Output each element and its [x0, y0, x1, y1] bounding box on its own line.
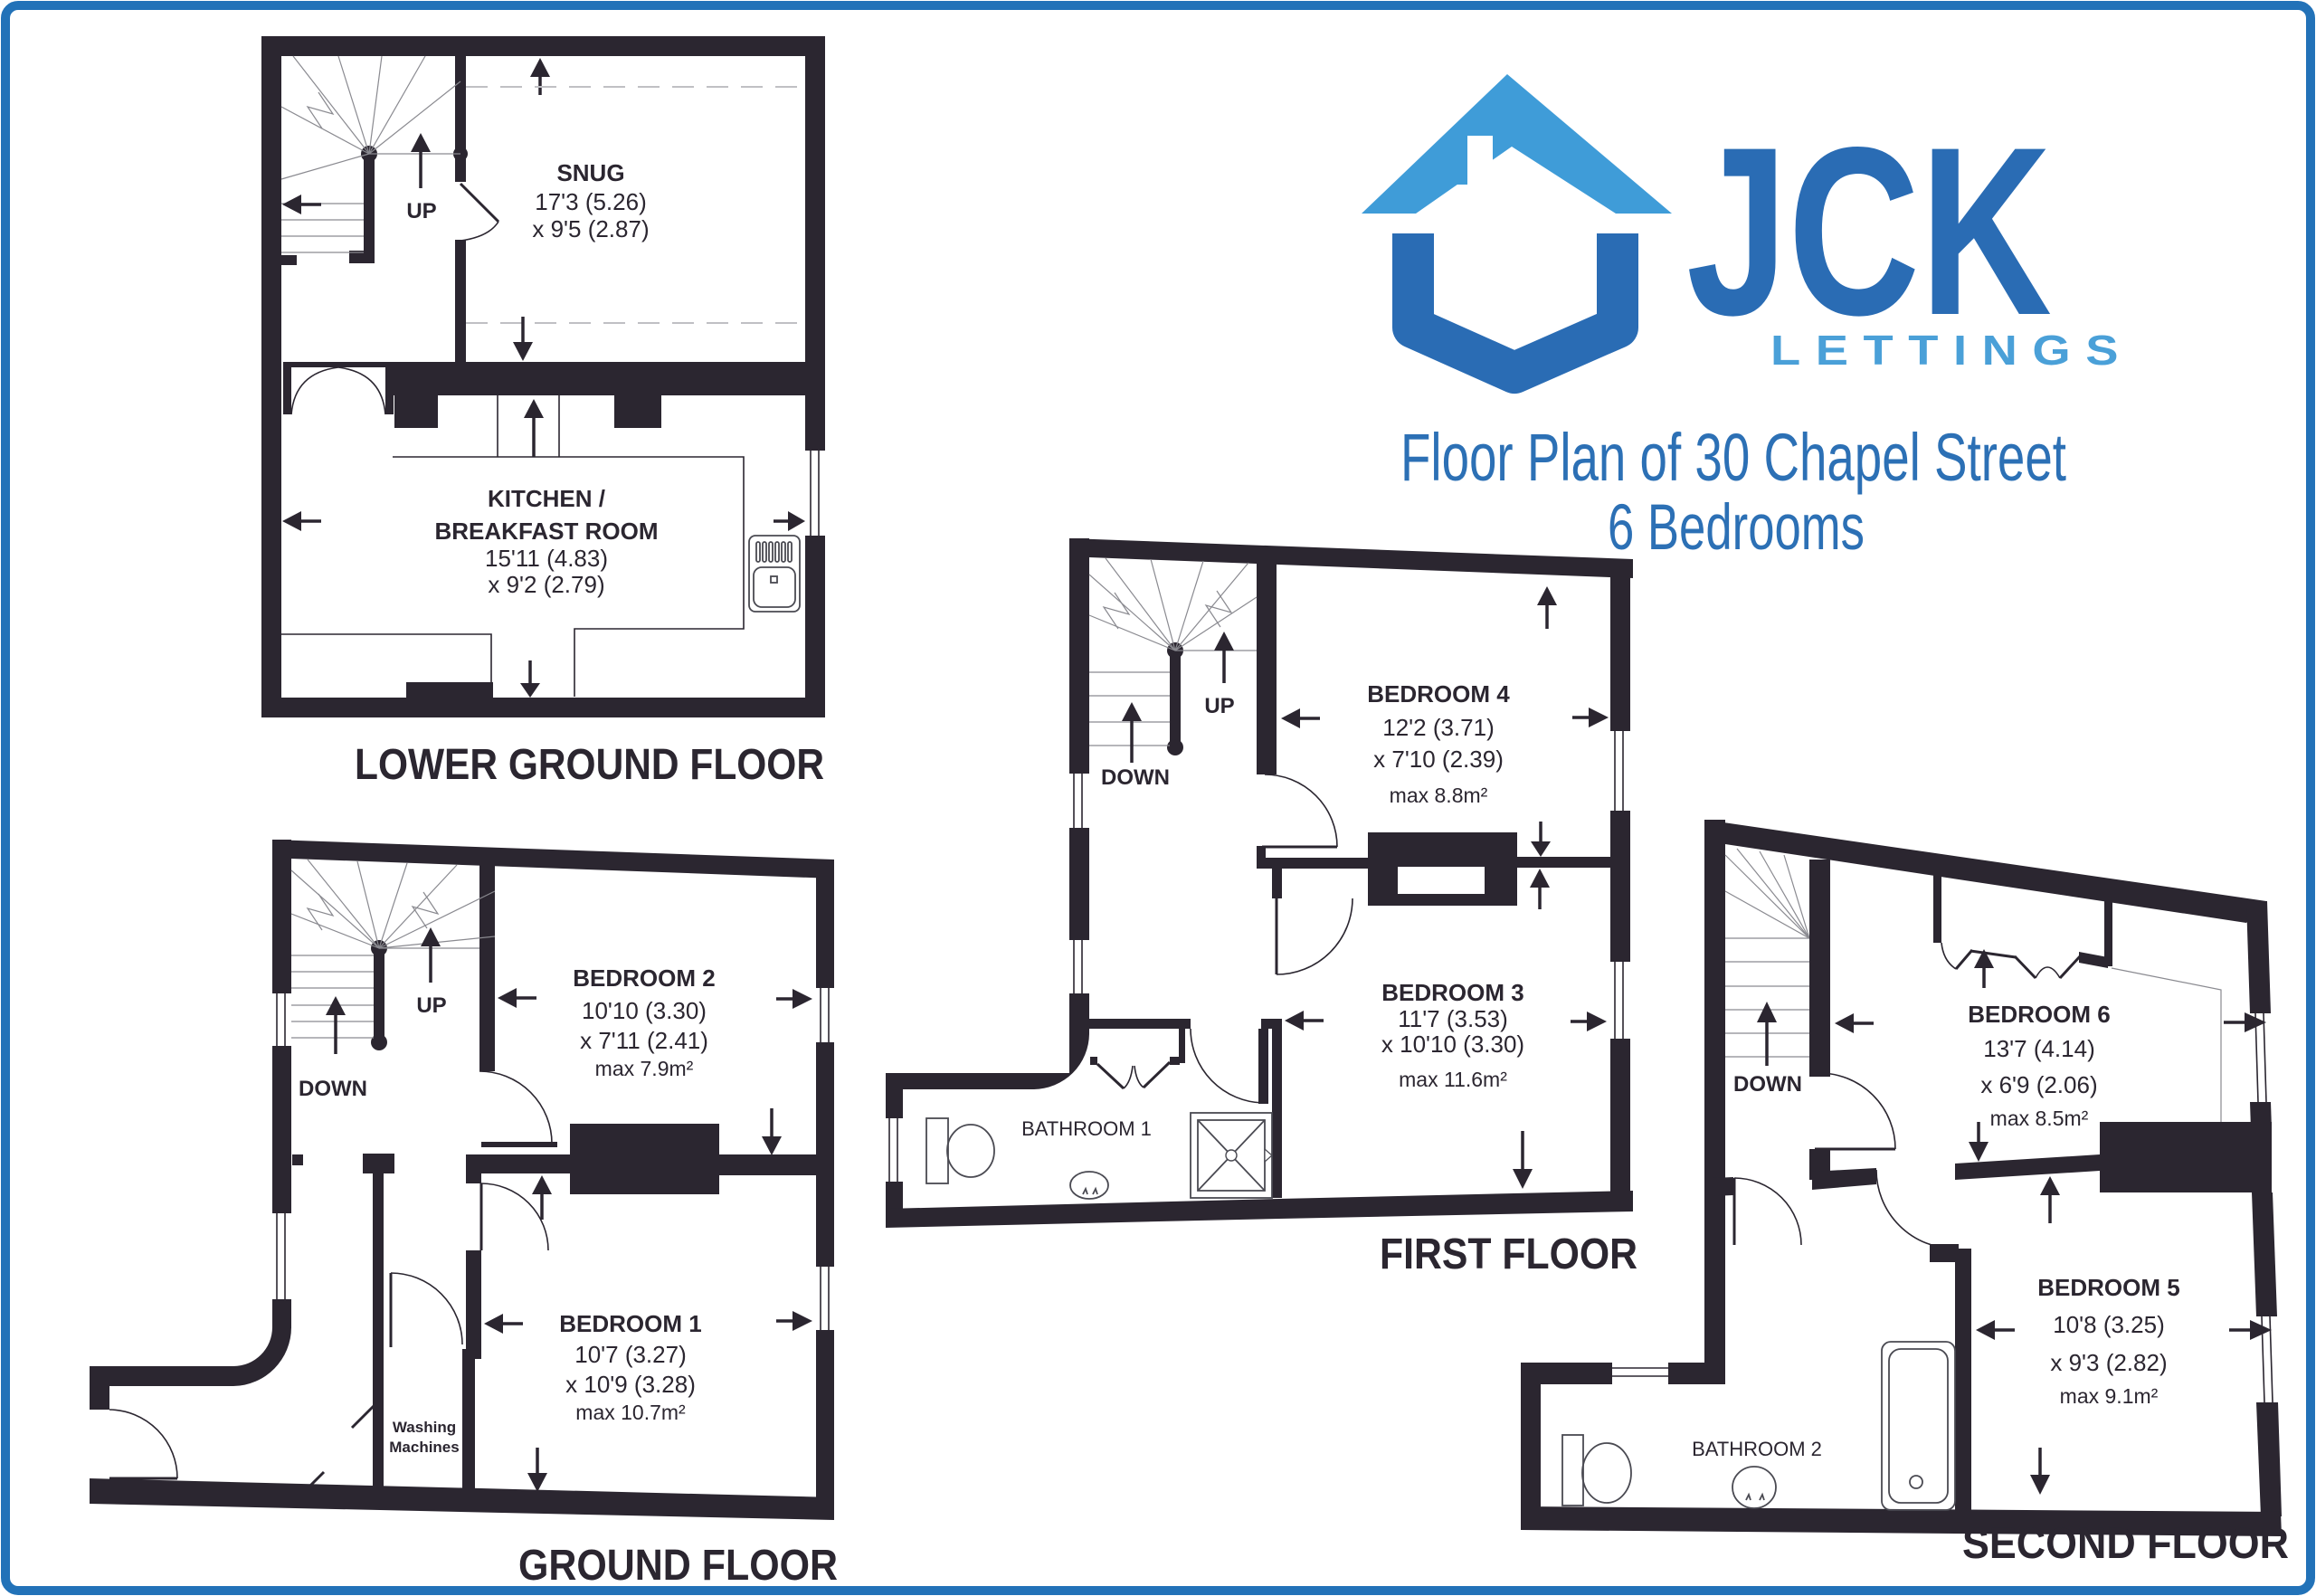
svg-text:x 7'10 (2.39): x 7'10 (2.39) — [1373, 746, 1504, 773]
svg-text:BEDROOM 6: BEDROOM 6 — [1968, 1001, 2110, 1028]
svg-text:x 10'9 (3.28): x 10'9 (3.28) — [565, 1371, 696, 1398]
svg-text:SECOND FLOOR: SECOND FLOOR — [1962, 1520, 2289, 1568]
svg-text:UP: UP — [416, 993, 446, 1018]
svg-text:6 Bedrooms: 6 Bedrooms — [1608, 492, 1865, 564]
svg-text:BEDROOM 2: BEDROOM 2 — [573, 964, 715, 992]
svg-text:UP: UP — [406, 199, 436, 223]
svg-text:LETTINGS: LETTINGS — [1770, 327, 2133, 374]
svg-text:DOWN: DOWN — [1101, 765, 1170, 790]
svg-text:BEDROOM 5: BEDROOM 5 — [2037, 1274, 2179, 1301]
svg-text:BEDROOM 1: BEDROOM 1 — [559, 1310, 701, 1337]
svg-text:x 10'10 (3.30): x 10'10 (3.30) — [1381, 1031, 1524, 1058]
svg-text:13'7 (4.14): 13'7 (4.14) — [1983, 1035, 2095, 1062]
svg-text:17'3 (5.26): 17'3 (5.26) — [535, 188, 647, 215]
svg-text:Floor Plan of 30 Chapel Street: Floor Plan of 30 Chapel Street — [1400, 420, 2066, 495]
svg-text:SNUG: SNUG — [556, 159, 624, 186]
svg-text:Machines: Machines — [389, 1439, 459, 1456]
svg-text:x 6'9 (2.06): x 6'9 (2.06) — [1980, 1071, 2097, 1098]
svg-text:10'10 (3.30): 10'10 (3.30) — [582, 997, 707, 1024]
svg-text:LOWER GROUND FLOOR: LOWER GROUND FLOOR — [355, 741, 824, 789]
svg-text:11'7 (3.53): 11'7 (3.53) — [1398, 1005, 1508, 1032]
svg-text:max 10.7m²: max 10.7m² — [575, 1401, 686, 1424]
svg-text:15'11 (4.83): 15'11 (4.83) — [485, 545, 608, 572]
svg-text:BEDROOM 4: BEDROOM 4 — [1367, 680, 1510, 708]
svg-text:x 9'3 (2.82): x 9'3 (2.82) — [2050, 1349, 2167, 1376]
svg-text:12'2 (3.71): 12'2 (3.71) — [1382, 714, 1495, 741]
svg-text:x 9'5 (2.87): x 9'5 (2.87) — [532, 215, 649, 242]
svg-text:10'8 (3.25): 10'8 (3.25) — [2053, 1311, 2165, 1338]
svg-text:max 7.9m²: max 7.9m² — [595, 1057, 694, 1080]
svg-text:x 9'2 (2.79): x 9'2 (2.79) — [488, 571, 604, 598]
svg-text:BATHROOM 1: BATHROOM 1 — [1021, 1117, 1152, 1140]
svg-text:UP: UP — [1204, 694, 1234, 718]
svg-text:x 7'11 (2.41): x 7'11 (2.41) — [580, 1027, 708, 1054]
svg-text:max 9.1m²: max 9.1m² — [2060, 1384, 2159, 1408]
svg-text:max 8.8m²: max 8.8m² — [1390, 784, 1488, 807]
svg-text:KITCHEN /: KITCHEN / — [488, 485, 605, 512]
svg-text:BREAKFAST ROOM: BREAKFAST ROOM — [435, 518, 659, 545]
svg-text:max 8.5m²: max 8.5m² — [1990, 1107, 2089, 1130]
svg-text:DOWN: DOWN — [1733, 1072, 1802, 1097]
svg-text:10'7 (3.27): 10'7 (3.27) — [574, 1341, 687, 1368]
svg-text:GROUND FLOOR: GROUND FLOOR — [518, 1542, 838, 1590]
svg-text:JCK: JCK — [1686, 98, 2052, 366]
svg-text:FIRST FLOOR: FIRST FLOOR — [1380, 1230, 1637, 1278]
svg-text:BATHROOM 2: BATHROOM 2 — [1692, 1438, 1822, 1460]
svg-text:Washing: Washing — [393, 1419, 456, 1436]
svg-text:DOWN: DOWN — [299, 1077, 367, 1101]
svg-text:BEDROOM 3: BEDROOM 3 — [1381, 979, 1523, 1006]
svg-text:max 11.6m²: max 11.6m² — [1399, 1068, 1507, 1091]
